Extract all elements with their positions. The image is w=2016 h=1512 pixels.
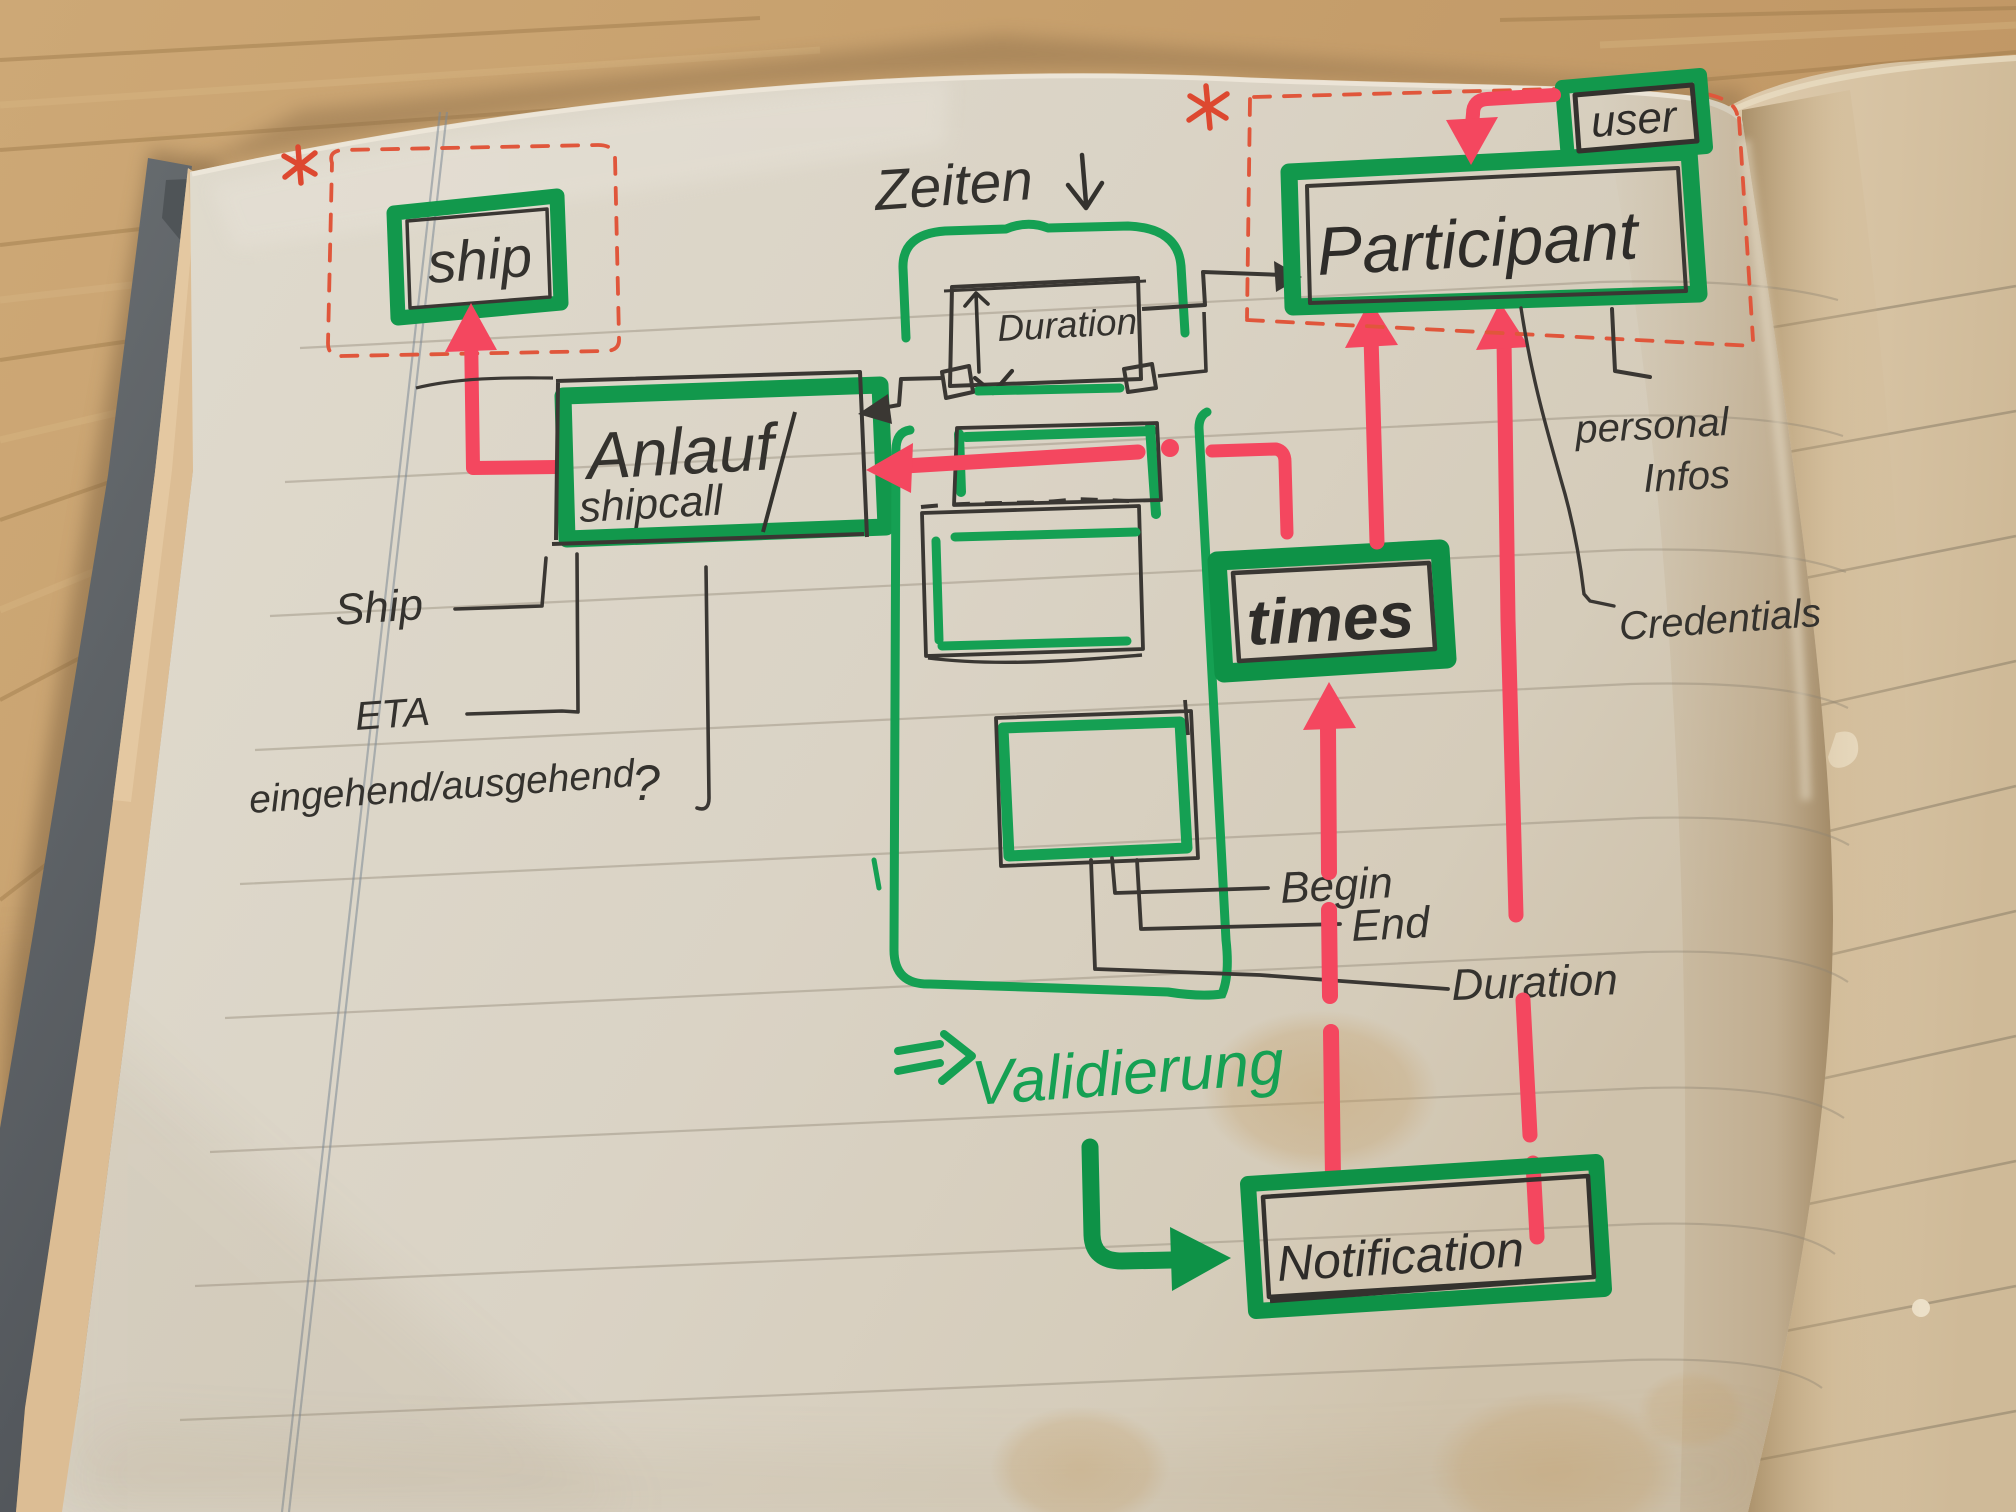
- svg-text:shipcall: shipcall: [578, 476, 725, 532]
- svg-text:Duration: Duration: [1451, 955, 1619, 1010]
- svg-text:Infos: Infos: [1642, 453, 1731, 501]
- svg-text:Ship: Ship: [333, 580, 424, 635]
- svg-text:ETA: ETA: [354, 690, 432, 739]
- svg-text:End: End: [1350, 898, 1432, 951]
- svg-text:personal: personal: [1573, 400, 1731, 452]
- svg-text:times: times: [1245, 578, 1416, 659]
- svg-text:Duration: Duration: [996, 301, 1138, 349]
- svg-text:Zeiten: Zeiten: [870, 148, 1034, 223]
- svg-text:user: user: [1589, 92, 1680, 147]
- svg-text:?: ?: [632, 755, 660, 811]
- svg-text:ship: ship: [425, 225, 534, 296]
